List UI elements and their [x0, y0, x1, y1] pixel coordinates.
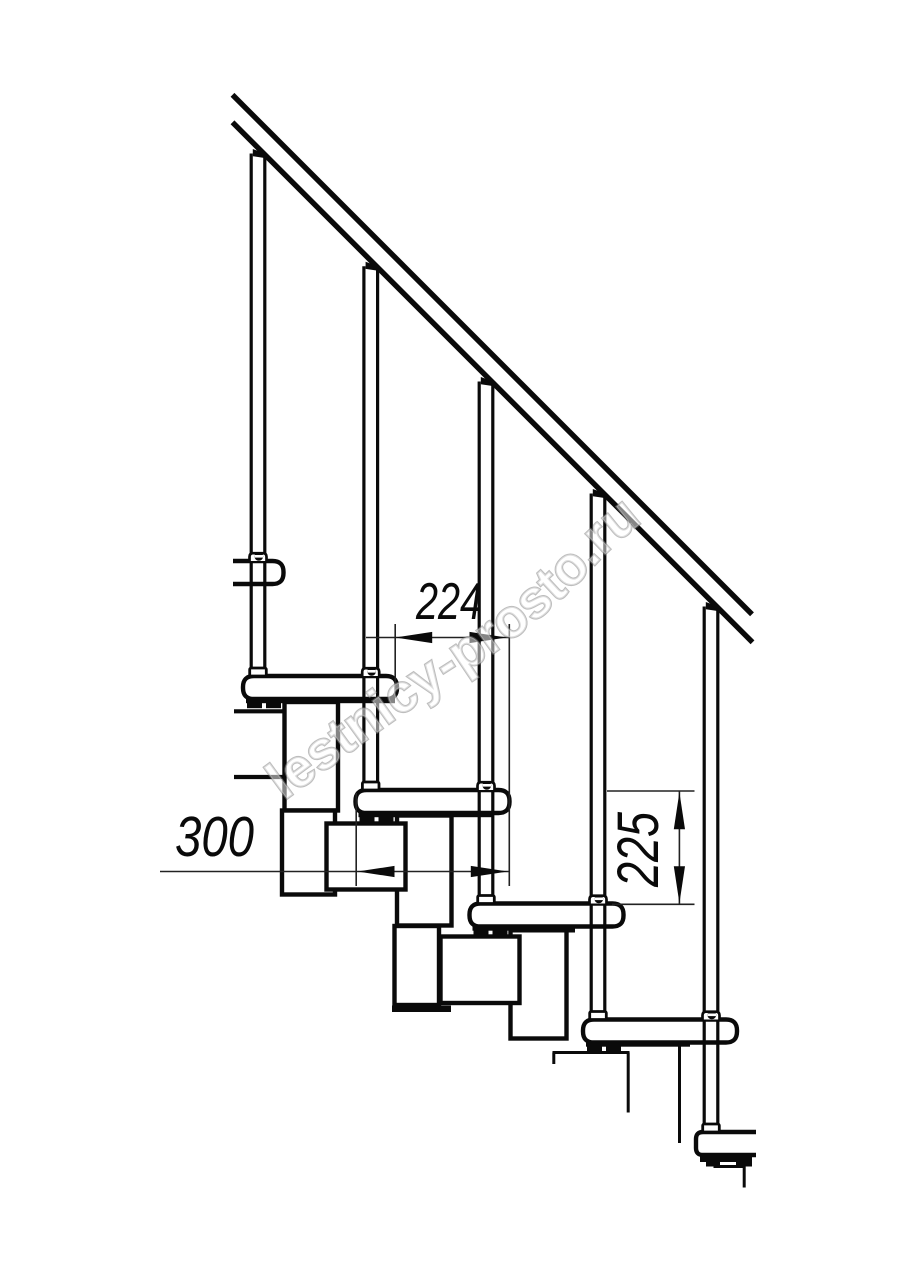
svg-text:225: 225	[606, 811, 671, 887]
svg-text:300: 300	[175, 805, 254, 869]
